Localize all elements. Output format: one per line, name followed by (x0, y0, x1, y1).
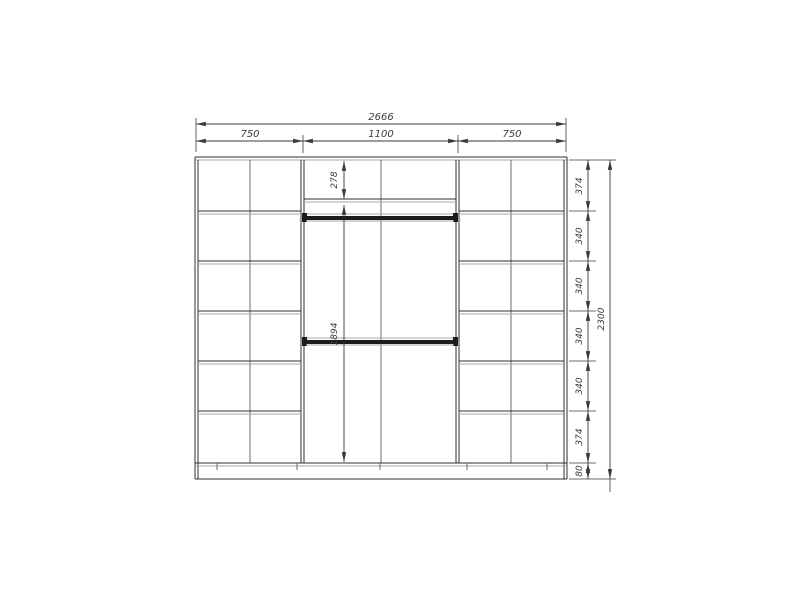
right-side-panel (564, 157, 567, 479)
dim-label-section-right: 750 (502, 129, 521, 140)
dim-label-segment-3: 340 (575, 277, 585, 294)
dimension-annotations: 2666 750 1100 750 (196, 112, 616, 492)
lower-hanging-rail (302, 337, 458, 346)
dim-middle-hanging: 1894 (330, 205, 344, 462)
dim-label-middle-hanging: 1894 (330, 322, 340, 345)
wardrobe-technical-drawing: 2666 750 1100 750 (0, 0, 800, 600)
drawing-canvas: 2666 750 1100 750 (0, 0, 800, 600)
left-partition (301, 160, 304, 463)
right-partition (456, 160, 459, 463)
left-side-panel (195, 157, 198, 479)
bottom-panel (195, 463, 567, 466)
dim-label-section-left: 750 (240, 129, 259, 140)
dim-label-section-middle: 1100 (368, 129, 393, 140)
dim-label-total-height: 2300 (597, 307, 607, 330)
dim-label-segment-4: 340 (575, 327, 585, 344)
dim-label-segment-6: 374 (575, 428, 585, 445)
dim-middle-shelf: 278 (330, 161, 344, 199)
dim-sections: 750 1100 750 (196, 129, 566, 153)
dim-label-segment-7: 80 (575, 465, 585, 477)
dim-label-segment-2: 340 (575, 227, 585, 244)
plinth (195, 463, 567, 479)
dim-height-segments: 374 340 340 340 340 374 80 (569, 160, 616, 479)
dim-label-total-width: 2666 (368, 112, 393, 123)
dim-label-middle-shelf: 278 (330, 171, 340, 188)
dim-label-segment-5: 340 (575, 377, 585, 394)
middle-top-shelf (304, 199, 456, 202)
dim-total-height: 2300 (597, 160, 610, 492)
upper-hanging-rail (302, 213, 458, 222)
dim-label-segment-1: 374 (575, 177, 585, 194)
top-panel (195, 157, 567, 160)
cabinet (195, 157, 567, 479)
